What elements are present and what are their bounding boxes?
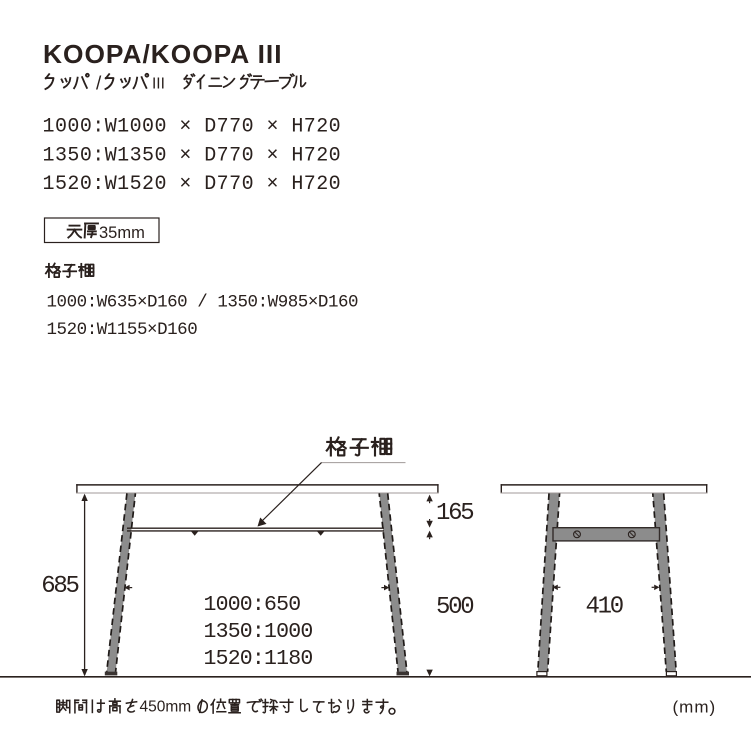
svg-text:(mm): (mm) — [673, 698, 717, 717]
svg-text:/: / — [96, 73, 102, 94]
svg-text:1350:W1350 × D770 × H720: 1350:W1350 × D770 × H720 — [43, 144, 342, 167]
svg-text:1350:1000: 1350:1000 — [204, 620, 313, 644]
svg-text:450mm: 450mm — [140, 699, 192, 716]
svg-text:III: III — [152, 75, 165, 92]
svg-text:1000:W1000 × D770 × H720: 1000:W1000 × D770 × H720 — [43, 116, 342, 139]
svg-text:1000:W635×D160 / 1350:W985×D16: 1000:W635×D160 / 1350:W985×D160 — [47, 293, 359, 313]
svg-text:1520:W1520 × D770 × H720: 1520:W1520 × D770 × H720 — [43, 173, 342, 196]
svg-text:410: 410 — [586, 594, 623, 621]
svg-text:1520:1180: 1520:1180 — [204, 647, 313, 671]
svg-text:KOOPA/KOOPA III: KOOPA/KOOPA III — [43, 39, 283, 69]
svg-text:500: 500 — [436, 594, 473, 621]
svg-text:165: 165 — [436, 500, 473, 527]
svg-text:35mm: 35mm — [99, 224, 145, 242]
svg-text:685: 685 — [41, 573, 78, 600]
svg-text:1000:650: 1000:650 — [204, 593, 301, 617]
svg-text:1520:W1155×D160: 1520:W1155×D160 — [47, 320, 198, 340]
